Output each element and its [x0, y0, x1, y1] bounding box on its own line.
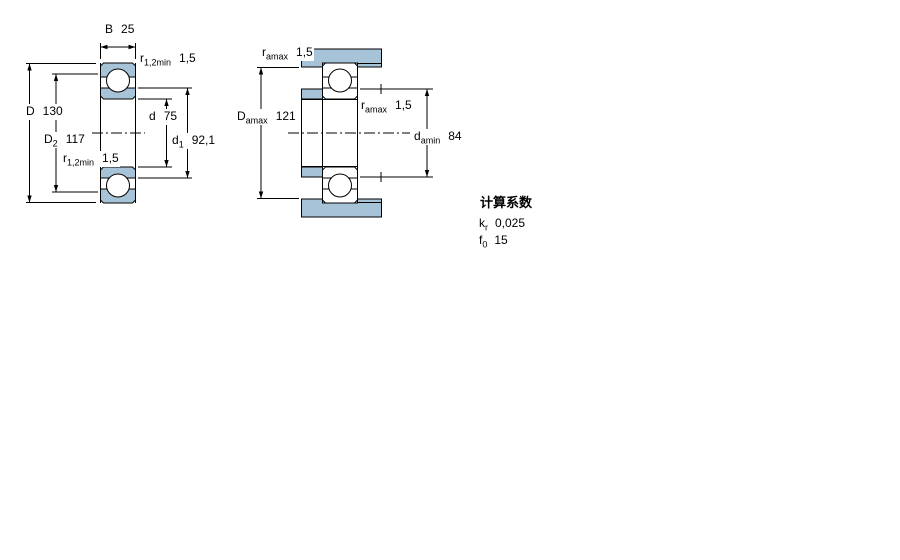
dim-label-ramax-mid: ramax1,5 — [360, 98, 413, 114]
dim-label-B: B25 — [104, 22, 135, 38]
dim-value: 25 — [121, 22, 134, 36]
factor-value: 15 — [494, 233, 507, 247]
dim-label-damin: damin84 — [413, 129, 463, 145]
dim-label-Damax: Damax121 — [236, 109, 297, 125]
dim-value: 117 — [66, 132, 85, 146]
dim-label-D2: D2117 — [43, 132, 86, 148]
dim-sub: amin — [421, 135, 441, 145]
dim-value: 1,5 — [395, 98, 412, 112]
dim-sub: 2 — [53, 138, 58, 148]
dim-sub: 1,2min — [144, 57, 171, 67]
dim-sub: 1,2min — [67, 157, 94, 167]
dim-value: 1,5 — [179, 51, 196, 65]
factor-value: 0,025 — [495, 216, 525, 230]
dim-symbol: d — [172, 133, 179, 147]
dim-label-D: D130 — [25, 104, 64, 120]
dim-symbol: D — [26, 104, 35, 118]
dim-label-d: d75 — [148, 109, 178, 125]
calculation-factors-title: 计算系数 — [480, 195, 532, 210]
dim-value: 1,5 — [296, 45, 313, 59]
dim-sub: amax — [266, 51, 288, 61]
factor-sub: r — [485, 222, 488, 232]
dim-label-r12-bottom: r1,2min1,5 — [62, 151, 120, 167]
dim-value: 92,1 — [192, 133, 215, 147]
dim-value: 84 — [448, 129, 461, 143]
right-bearing-outline — [288, 63, 410, 203]
bearing-drawing-canvas: B25 r1,2min1,5 D130 D2117 r1,2min1,5 d75… — [0, 0, 900, 560]
dim-symbol: D — [237, 109, 246, 123]
dim-value: 75 — [164, 109, 177, 123]
dim-value: 121 — [276, 109, 296, 123]
factor-row-f0: f015 — [479, 233, 508, 249]
dim-sub: amax — [365, 104, 387, 114]
dim-sub: amax — [246, 115, 268, 125]
dim-symbol: B — [105, 22, 113, 36]
drawing-linework — [0, 0, 900, 560]
dim-symbol: D — [44, 132, 53, 146]
factor-row-kr: kr0,025 — [479, 216, 525, 232]
dim-symbol: d — [149, 109, 156, 123]
dim-label-d1: d192,1 — [171, 133, 216, 149]
left-bearing-section — [92, 63, 145, 203]
dim-label-ramax-top: ramax1,5 — [261, 45, 314, 61]
dim-sub: 1 — [179, 139, 184, 149]
dim-value: 1,5 — [102, 151, 119, 165]
dim-symbol: d — [414, 129, 421, 143]
dim-label-r12-top: r1,2min1,5 — [139, 51, 197, 67]
dim-value: 130 — [43, 104, 63, 118]
factor-sub: 0 — [482, 239, 487, 249]
